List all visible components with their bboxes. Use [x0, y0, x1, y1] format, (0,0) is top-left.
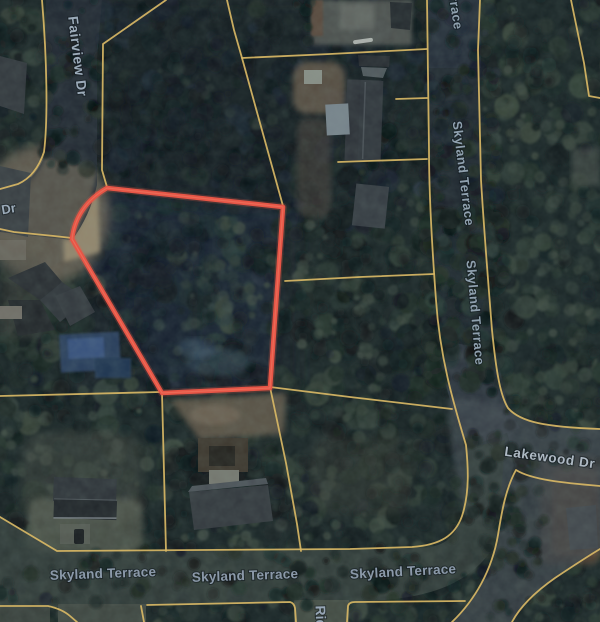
svg-text:Ridgeland Dr: Ridgeland Dr: [313, 605, 332, 622]
